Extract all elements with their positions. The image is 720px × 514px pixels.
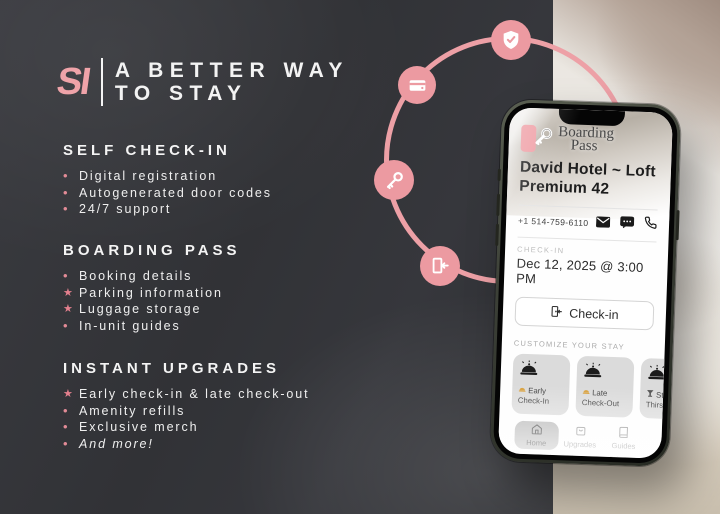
list-item-text: Luggage storage — [79, 301, 201, 318]
section-title: SELF CHECK-IN — [63, 142, 493, 159]
nav-label: Home — [526, 438, 546, 448]
drink-icon — [646, 389, 654, 400]
logo-divider — [101, 58, 103, 106]
list-item: •Exclusive merch — [63, 419, 493, 436]
nav-item-upgrades[interactable]: Upgrades — [558, 422, 603, 452]
card-line1: Early — [528, 386, 546, 397]
checkin-button-label: Check-in — [569, 306, 619, 322]
list-item-text: In-unit guides — [79, 318, 181, 335]
checkin-door-icon — [550, 304, 564, 320]
star-icon: ★ — [63, 285, 79, 302]
nav-item-guides[interactable]: Guides — [601, 424, 646, 454]
bullet-dot: • — [63, 268, 79, 285]
home-icon — [530, 423, 542, 437]
list-item: ★Early check-in & late check-out — [63, 386, 493, 403]
promo-graphic: SI A BETTER WAY TO STAY SELF CHECK-IN •D… — [0, 0, 720, 514]
app-content: Boarding Pass David Hotel ~ Loft Premium… — [498, 121, 672, 458]
list-item: ★Luggage storage — [63, 301, 493, 318]
mini-bell-icon — [518, 385, 526, 396]
feature-list: ★Early check-in & late check-out •Amenit… — [63, 386, 493, 452]
credit-card-icon — [398, 66, 436, 104]
card-late-check-out[interactable]: Late Check-Out — [575, 356, 634, 418]
list-item: •Autogenerated door codes — [63, 185, 493, 202]
phone-mockup: Boarding Pass David Hotel ~ Loft Premium… — [490, 99, 682, 467]
si-logo: SI — [54, 63, 91, 101]
volume-down-button — [495, 224, 499, 246]
upgrades-icon — [574, 425, 586, 439]
call-icon[interactable] — [644, 216, 658, 234]
nav-item-home[interactable]: Home — [514, 421, 559, 451]
section-title: INSTANT UPGRADES — [63, 360, 493, 377]
list-item-text: And more! — [79, 436, 154, 453]
bullet-dot: • — [63, 201, 79, 218]
list-item: •Amenity refills — [63, 403, 493, 420]
property-title: David Hotel ~ Loft Premium 42 — [519, 158, 672, 201]
bullet-dot: • — [63, 318, 79, 335]
list-item-text: Autogenerated door codes — [79, 185, 272, 202]
list-item: •And more! — [63, 436, 493, 453]
chat-icon[interactable] — [620, 215, 635, 233]
card-still-thirsty[interactable]: Still Thirsty — [639, 358, 673, 420]
feature-list: •Digital registration •Autogenerated doo… — [63, 168, 493, 218]
headline-line1: A BETTER WAY — [115, 59, 349, 82]
nav-label: Guides — [611, 441, 635, 451]
headline: A BETTER WAY TO STAY — [115, 59, 349, 105]
star-icon: ★ — [63, 386, 79, 403]
section-instant-upgrades: INSTANT UPGRADES ★Early check-in & late … — [63, 360, 493, 452]
checkin-button[interactable]: Check-in — [514, 297, 654, 331]
bottom-nav: Home Upgrades Guides — [510, 420, 650, 453]
list-item-text: Digital registration — [79, 168, 217, 185]
divider — [519, 205, 658, 211]
service-bell-icon — [583, 362, 629, 385]
bullet-dot: • — [63, 403, 79, 420]
shield-check-icon — [491, 20, 531, 60]
phone-bezel: Boarding Pass David Hotel ~ Loft Premium… — [493, 102, 678, 464]
card-line1: Still — [656, 390, 669, 400]
phone-number: +1 514-759-6110 — [518, 215, 589, 227]
list-item-text: Early check-in & late check-out — [79, 386, 310, 403]
bullet-dot: • — [63, 185, 79, 202]
guides-icon — [618, 426, 630, 440]
upsell-cards: Early Check-In Late Check-Out Still Thir… — [511, 354, 673, 422]
brand-header: SI A BETTER WAY TO STAY — [57, 58, 349, 106]
service-bell-icon — [519, 360, 565, 383]
service-bell-icon — [646, 364, 673, 387]
card-line2: Thirsty — [646, 400, 673, 412]
list-item-text: Parking information — [79, 285, 223, 302]
card-line2: Check-In — [518, 396, 563, 408]
bullet-dot: • — [63, 436, 79, 453]
star-icon: ★ — [63, 301, 79, 318]
mute-switch — [498, 169, 501, 181]
divider — [518, 237, 657, 243]
email-icon[interactable] — [596, 214, 611, 232]
list-item: •In-unit guides — [63, 318, 493, 335]
list-item: •24/7 support — [63, 201, 493, 218]
section-title: BOARDING PASS — [63, 242, 493, 259]
contact-icons — [596, 214, 658, 234]
app-logo: Boarding Pass — [520, 122, 660, 159]
bullet-dot: • — [63, 168, 79, 185]
nav-label: Upgrades — [563, 439, 596, 449]
feature-list: •Booking details ★Parking information ★L… — [63, 268, 493, 334]
list-item: •Booking details — [63, 268, 493, 285]
card-line1: Late — [592, 388, 608, 399]
card-early-check-in[interactable]: Early Check-In — [511, 354, 570, 416]
app-logo-text: Boarding Pass — [558, 126, 615, 154]
checkin-datetime: Dec 12, 2025 @ 3:00 PM — [516, 256, 656, 291]
list-item-text: Amenity refills — [79, 403, 185, 420]
section-boarding-pass: BOARDING PASS •Booking details ★Parking … — [63, 242, 493, 334]
list-item-text: Booking details — [79, 268, 192, 285]
volume-up-button — [496, 194, 500, 216]
list-item: ★Parking information — [63, 285, 493, 302]
customize-your-stay-label: CUSTOMIZE YOUR STAY — [514, 339, 653, 353]
logo-key-icon — [530, 125, 555, 155]
mini-bell-icon — [582, 387, 590, 398]
phone-notch — [558, 109, 624, 126]
list-item-text: Exclusive merch — [79, 419, 199, 436]
contact-row: +1 514-759-6110 — [518, 213, 657, 233]
list-item-text: 24/7 support — [79, 201, 171, 218]
list-item: •Digital registration — [63, 168, 493, 185]
headline-line2: TO STAY — [115, 82, 349, 105]
bullet-dot: • — [63, 419, 79, 436]
section-self-check-in: SELF CHECK-IN •Digital registration •Aut… — [63, 142, 493, 218]
browser-url-bar[interactable]: guest.simplissimmo.ca — Private — [510, 452, 649, 458]
card-line2: Check-Out — [582, 398, 627, 410]
phone-screen: Boarding Pass David Hotel ~ Loft Premium… — [498, 107, 673, 458]
